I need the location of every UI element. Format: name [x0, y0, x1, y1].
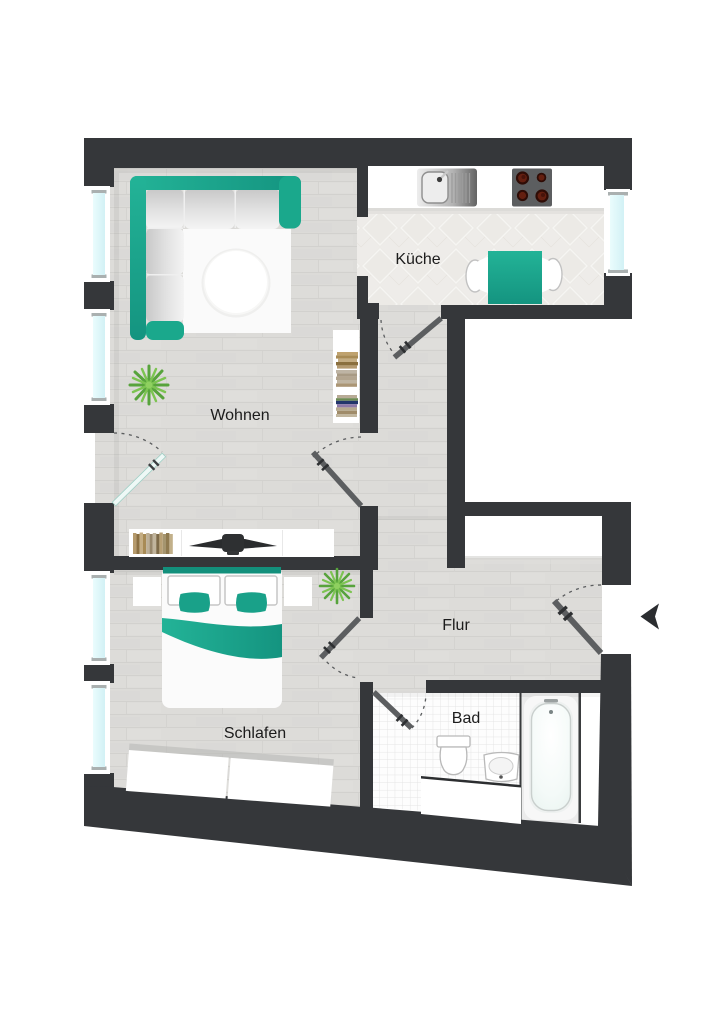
svg-text:Flur: Flur — [442, 617, 470, 634]
svg-text:Küche: Küche — [395, 251, 440, 268]
svg-text:Bad: Bad — [452, 710, 480, 727]
svg-text:Schlafen: Schlafen — [224, 725, 286, 742]
svg-text:Wohnen: Wohnen — [210, 407, 269, 424]
